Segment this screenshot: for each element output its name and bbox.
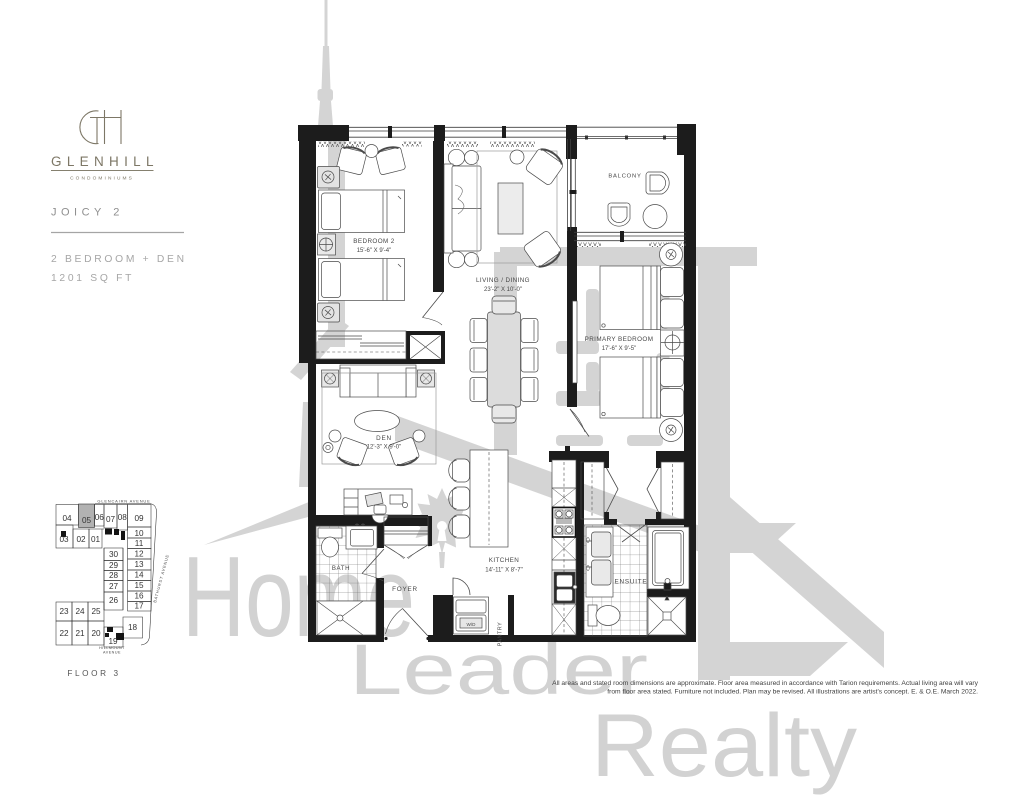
svg-text:BATH: BATH bbox=[332, 565, 350, 572]
svg-text:11: 11 bbox=[135, 539, 144, 548]
svg-text:19: 19 bbox=[108, 637, 118, 646]
svg-text:21: 21 bbox=[75, 629, 85, 638]
svg-text:LIVING / DINING: LIVING / DINING bbox=[476, 277, 530, 284]
svg-text:PANTRY: PANTRY bbox=[498, 622, 504, 646]
svg-text:26: 26 bbox=[109, 596, 119, 605]
svg-text:Realty: Realty bbox=[591, 695, 858, 795]
svg-text:18: 18 bbox=[128, 623, 138, 632]
svg-text:15: 15 bbox=[134, 581, 144, 590]
svg-text:02: 02 bbox=[76, 535, 86, 544]
svg-text:BATHURST AVENUE: BATHURST AVENUE bbox=[152, 553, 170, 603]
svg-text:30: 30 bbox=[109, 550, 119, 559]
svg-text:FLOOR 3: FLOOR 3 bbox=[67, 669, 120, 678]
svg-text:12'-3" X 9'-0": 12'-3" X 9'-0" bbox=[367, 445, 402, 451]
svg-text:01: 01 bbox=[91, 535, 101, 544]
svg-text:16: 16 bbox=[134, 592, 144, 601]
svg-text:12: 12 bbox=[134, 550, 144, 559]
svg-text:29: 29 bbox=[109, 561, 119, 570]
svg-text:14'-11" X 8'-7": 14'-11" X 8'-7" bbox=[485, 568, 522, 574]
svg-text:W/D: W/D bbox=[467, 622, 477, 627]
svg-text:14: 14 bbox=[134, 571, 144, 580]
svg-text:1201 SQ FT: 1201 SQ FT bbox=[51, 273, 134, 284]
svg-text:All areas and stated room dime: All areas and stated room dimensions are… bbox=[552, 680, 979, 687]
svg-text:06: 06 bbox=[95, 513, 105, 522]
svg-text:JOICY 2: JOICY 2 bbox=[51, 207, 124, 219]
svg-text:08: 08 bbox=[118, 513, 128, 522]
svg-text:04: 04 bbox=[62, 514, 72, 523]
svg-text:23: 23 bbox=[59, 607, 69, 616]
svg-text:17: 17 bbox=[134, 602, 144, 611]
svg-text:20: 20 bbox=[91, 629, 101, 638]
svg-text:AVENUE: AVENUE bbox=[103, 651, 121, 655]
svg-text:03: 03 bbox=[59, 535, 69, 544]
svg-text:15'-6" X 9'-4": 15'-6" X 9'-4" bbox=[357, 248, 392, 254]
svg-text:KITCHEN: KITCHEN bbox=[489, 557, 519, 564]
svg-text:GLENHILL: GLENHILL bbox=[51, 154, 154, 169]
svg-text:10: 10 bbox=[134, 529, 144, 538]
svg-text:PRIMARY BEDROOM: PRIMARY BEDROOM bbox=[585, 336, 654, 343]
svg-text:CONDOMINIUMS: CONDOMINIUMS bbox=[70, 176, 134, 182]
svg-text:BEDROOM 2: BEDROOM 2 bbox=[353, 238, 394, 245]
svg-text:BALCONY: BALCONY bbox=[608, 174, 641, 180]
svg-text:24: 24 bbox=[75, 607, 85, 616]
svg-text:from floor area stated. Furnit: from floor area stated. Furniture not in… bbox=[607, 689, 978, 696]
svg-text:DEN: DEN bbox=[376, 435, 392, 442]
svg-text:GLENCAIRN AVENUE: GLENCAIRN AVENUE bbox=[97, 499, 150, 504]
svg-text:23'-2" X 10'-0": 23'-2" X 10'-0" bbox=[484, 287, 522, 293]
svg-text:25: 25 bbox=[91, 607, 101, 616]
svg-text:17'-6" X 9'-5": 17'-6" X 9'-5" bbox=[602, 346, 637, 352]
svg-text:ENSUITE: ENSUITE bbox=[615, 579, 648, 586]
svg-text:05: 05 bbox=[82, 516, 92, 525]
svg-text:27: 27 bbox=[109, 582, 119, 591]
svg-text:07: 07 bbox=[106, 515, 116, 524]
svg-text:28: 28 bbox=[109, 571, 119, 580]
svg-text:09: 09 bbox=[134, 514, 144, 523]
svg-text:13: 13 bbox=[134, 560, 144, 569]
svg-text:HILLMOUNT: HILLMOUNT bbox=[99, 646, 125, 650]
svg-text:22: 22 bbox=[59, 629, 69, 638]
svg-text:FOYER: FOYER bbox=[392, 586, 418, 593]
svg-text:2 BEDROOM + DEN: 2 BEDROOM + DEN bbox=[51, 254, 187, 265]
